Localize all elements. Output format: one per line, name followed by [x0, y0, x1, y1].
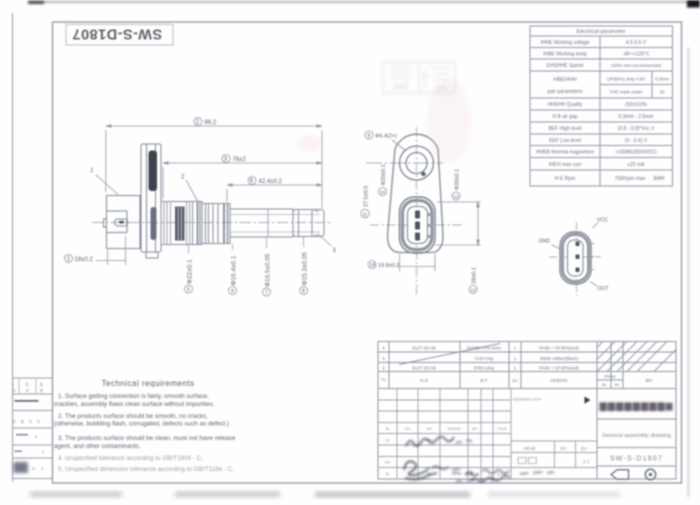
svg-text:≤20 mA: ≤20 mA: [627, 162, 645, 168]
svg-text:10: 10: [380, 190, 385, 195]
svg-text:9: 9: [368, 133, 371, 139]
svg-text:2: 2: [196, 120, 200, 126]
svg-text:(0 - 0.4) V: (0 - 0.4) V: [625, 138, 648, 144]
svg-text:11: 11: [363, 212, 368, 217]
svg-text:1: 1: [514, 366, 517, 371]
svg-text:EHHBH 7Pin-4mm: EHHBH 7Pin-4mm: [467, 346, 502, 351]
svg-text:EH: EH: [561, 446, 567, 451]
svg-text:HH: HH: [426, 427, 432, 431]
svg-text:5. Unspecified dimension toler: 5. Unspecified dimension tolerance accor…: [58, 466, 234, 473]
svg-text:28±0.1: 28±0.1: [471, 267, 477, 284]
svg-text:-: -: [34, 449, 36, 454]
svg-text:0.3mm - 2.5mm: 0.3mm - 2.5mm: [618, 114, 653, 120]
svg-text:SW-S-D1807: SW-S-D1807: [610, 456, 663, 463]
svg-text:(50±10)%: (50±10)%: [625, 102, 647, 108]
svg-text:4.5-5.5 V: 4.5-5.5 V: [626, 40, 647, 46]
svg-text:Ei: Ei: [386, 439, 389, 443]
svg-text:tE: tE: [386, 427, 390, 431]
svg-text:8: 8: [302, 289, 305, 295]
svg-text:S: S: [13, 388, 16, 393]
svg-text:13: 13: [471, 288, 476, 293]
svg-text:Φ26±0.1: Φ26±0.1: [454, 169, 460, 190]
svg-text:B: B: [40, 388, 43, 393]
svg-text:7000rpm max: 7000rpm max: [615, 176, 646, 182]
svg-text:pair parameters: pair parameters: [547, 89, 583, 95]
svg-text:B: B: [40, 382, 43, 387]
svg-text:PA66 + GF30%(red): PA66 + GF30%(red): [539, 366, 579, 371]
svg-text:Φ22±0.1: Φ22±0.1: [186, 259, 193, 284]
svg-text:8H: 8H: [615, 383, 620, 387]
svg-text:Technical requirements: Technical requirements: [102, 379, 195, 388]
svg-text:7: 7: [265, 290, 268, 296]
svg-text:1:1: 1:1: [583, 459, 590, 464]
svg-text:SW-S-D1807: SW-S-D1807: [72, 26, 162, 42]
svg-text:E: E: [26, 382, 29, 387]
svg-text:19.8±0.2: 19.8±0.2: [378, 263, 399, 269]
svg-text:32: 32: [659, 90, 665, 95]
svg-text:IHEH max curr: IHEH max curr: [549, 162, 582, 168]
svg-text:Φ20±0.1: Φ20±0.1: [381, 164, 387, 185]
svg-text:8H: 8H: [602, 383, 607, 387]
svg-text:0.5mm: 0.5mm: [655, 77, 669, 82]
svg-text:EH: EH: [405, 427, 410, 431]
svg-text:Φ15.3±0.05: Φ15.3±0.05: [301, 252, 308, 286]
svg-text:GND: GND: [539, 239, 551, 245]
svg-text:t: t: [13, 382, 15, 387]
svg-text:(0.8 - 0.9)*Vcc V: (0.8 - 0.9)*Vcc V: [618, 126, 655, 132]
svg-text:x: x: [42, 449, 45, 454]
svg-text:UP(50%) duty 4.8V: UP(50%) duty 4.8V: [607, 77, 646, 82]
svg-text:27.5±0.5: 27.5±0.5: [363, 186, 369, 207]
svg-text:2: 2: [181, 175, 185, 181]
svg-text:4: 4: [382, 346, 385, 351]
svg-text:14: 14: [370, 263, 376, 269]
svg-text:96.2: 96.2: [205, 120, 217, 126]
svg-text:>100MΩ(500VDC): >100MΩ(500VDC): [615, 150, 657, 156]
svg-text:IHBE Working temp: IHBE Working temp: [543, 52, 587, 58]
svg-text:42.4±0.2: 42.4±0.2: [259, 179, 283, 185]
svg-text:H B air gap: H B air gap: [552, 114, 577, 120]
svg-text:HHEHH Quality: HHEHH Quality: [548, 102, 583, 108]
svg-text:THE mark under: THE mark under: [609, 90, 643, 95]
svg-text:1. Surface getting connection: 1. Surface getting connection is fairly,…: [58, 393, 209, 400]
svg-text:76±2: 76±2: [233, 157, 247, 163]
svg-text:S: S: [37, 419, 40, 424]
svg-text:H: H: [32, 466, 35, 471]
svg-text:EH: EH: [512, 379, 518, 383]
svg-text:Φ6.4(2×): Φ6.4(2×): [375, 134, 397, 140]
svg-text:4. unspecified tolerance accor: 4. unspecified tolerance according to GB…: [58, 455, 203, 462]
svg-text:H E Rpm: H E Rpm: [555, 176, 575, 182]
svg-text:3: 3: [224, 157, 228, 163]
svg-text:4: 4: [231, 289, 234, 295]
svg-text:3. The products surface should: 3. The products surface should be clean,…: [58, 435, 236, 442]
svg-text:OUT: OUT: [598, 286, 610, 292]
svg-text:BEF High level: BEF High level: [548, 126, 581, 132]
svg-text:EH: EH: [472, 427, 477, 431]
svg-text:6127-3G-06: 6127-3G-06: [412, 366, 436, 371]
svg-text:PA66 + GF30%(red): PA66 + GF30%(red): [539, 346, 579, 351]
svg-text:EHSHHE Speed: EHSHHE Speed: [547, 63, 584, 69]
svg-text:EH: EH: [385, 461, 390, 465]
svg-text:BH: BH: [646, 378, 653, 384]
svg-text:x: x: [35, 434, 38, 439]
svg-text:O-EH ring: O-EH ring: [475, 356, 494, 361]
svg-text:1: 1: [514, 346, 517, 351]
svg-text:3: 3: [333, 248, 337, 254]
svg-text:B: B: [21, 419, 24, 424]
svg-text:HBEHHH: HBEHHH: [553, 77, 576, 83]
svg-text:J: J: [41, 466, 43, 471]
svg-text:EH: EH: [581, 446, 587, 451]
svg-text:EB(kg): EB(kg): [605, 375, 616, 379]
svg-text:S: S: [26, 388, 29, 393]
svg-text:100% min-recommended: 100% min-recommended: [611, 63, 662, 68]
svg-text:6127-3G-06: 6127-3G-06: [412, 346, 436, 351]
svg-text:HHEHH: HHEHH: [550, 378, 568, 384]
svg-text:Φ16.5±0.05: Φ16.5±0.05: [264, 253, 271, 287]
svg-text:E: E: [13, 419, 16, 424]
svg-text:H S: H S: [420, 378, 428, 384]
svg-text:6: 6: [250, 179, 254, 185]
svg-text:EEF Low level: EEF Low level: [549, 138, 581, 144]
svg-text:EHEH plug: EHEH plug: [474, 366, 495, 371]
svg-text:crackles, assembly flaws clean: crackles, assembly flaws clean surface w…: [54, 401, 215, 408]
svg-text:General assembly drawing: General assembly drawing: [602, 433, 671, 439]
svg-text:12: 12: [454, 194, 459, 199]
svg-text:HEHE: HEHE: [524, 446, 536, 451]
svg-text:agent, and other contaminants.: agent, and other contaminants.: [54, 443, 141, 450]
svg-text:EHH: EHH: [654, 176, 665, 182]
svg-text:Nitrile rubber(black): Nitrile rubber(black): [540, 356, 579, 361]
svg-text:S: S: [29, 419, 32, 424]
svg-text:1: 1: [514, 356, 517, 361]
svg-text:5: 5: [187, 287, 190, 293]
svg-text:1: 1: [90, 168, 94, 174]
svg-text:Electrical parameter: Electrical parameter: [577, 29, 626, 35]
svg-text:Φ16.4±0.1: Φ16.4±0.1: [230, 255, 237, 285]
svg-text:FS: FS: [381, 378, 386, 382]
svg-text:HHEB thermal magnetism: HHEB thermal magnetism: [536, 150, 594, 156]
svg-text:EHXHS: EHXHS: [448, 427, 461, 431]
svg-text:B F: B F: [480, 378, 488, 384]
svg-text:2. The products surface should: 2. The products surface should be smooth…: [58, 413, 208, 420]
svg-text:(otherwise, bubbling flash, co: (otherwise, bubbling flash, corrugated, …: [54, 421, 229, 428]
svg-text:VCC: VCC: [597, 218, 608, 224]
svg-text:-40~+125°C: -40~+125°C: [622, 52, 649, 58]
svg-text:IHHE Working voltage: IHHE Working voltage: [540, 40, 589, 46]
svg-text:3: 3: [382, 356, 385, 361]
svg-text:E(E)HHEI 1/±%: E(E)HHEI 1/±%: [513, 397, 541, 402]
svg-text:IE: IE: [386, 472, 390, 476]
svg-text:2: 2: [382, 366, 385, 371]
svg-text:F.H.B: F.H.B: [497, 427, 507, 431]
svg-text:18±0.2: 18±0.2: [75, 257, 94, 263]
